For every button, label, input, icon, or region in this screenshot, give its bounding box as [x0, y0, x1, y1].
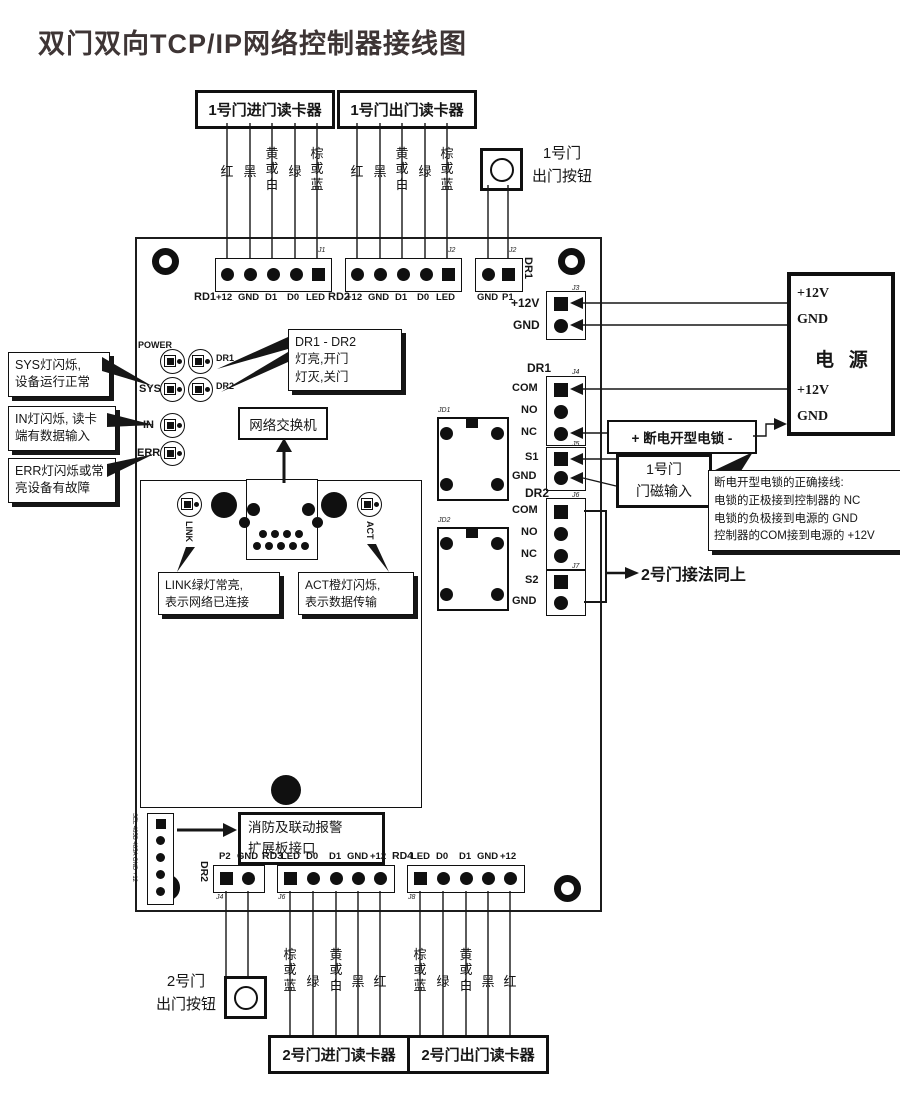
relay-label: JD2 — [438, 517, 450, 524]
link-callout: LINK绿灯常亮, 表示网络已连接 — [158, 572, 280, 615]
pin-circle — [352, 872, 365, 885]
door2-exit-button-label: 2号门 出门按钮 — [150, 971, 222, 1016]
pin-label: +12 — [216, 292, 232, 303]
terminal-block-s2 — [546, 570, 586, 616]
pin-circle — [554, 471, 568, 485]
pin-circle — [482, 268, 495, 281]
wire-label: 红 — [349, 164, 365, 179]
rd3-label: RD3 — [262, 850, 283, 862]
mounting-hole — [152, 248, 179, 275]
wire-label: 棕或蓝 — [282, 947, 298, 993]
pin-label: GND — [512, 470, 536, 482]
pin-label: D0 — [287, 292, 299, 303]
pin-label: GND — [477, 292, 498, 303]
relay-pin — [491, 478, 504, 491]
act-callout: ACT橙灯闪烁, 表示数据传输 — [298, 572, 414, 615]
sys-led-label: SYS — [139, 383, 161, 395]
wire-label: 黄或白 — [328, 947, 344, 993]
buzzer — [271, 775, 301, 805]
pin-circle — [437, 872, 450, 885]
wire-label: 红 — [219, 164, 235, 179]
pin-label: GND — [477, 851, 498, 862]
dr2-vertical-label: DR2 — [198, 861, 210, 893]
pin-square — [554, 575, 568, 589]
terminal-block-rd1 — [215, 258, 332, 292]
relay-pin — [440, 537, 453, 550]
pin-label: LED — [281, 851, 300, 862]
pin-circle — [156, 870, 165, 879]
link-led — [177, 492, 202, 517]
pin-label: +12V — [511, 296, 539, 310]
rj45-small-circle — [302, 503, 315, 516]
err-led — [160, 441, 185, 466]
led-square — [192, 383, 204, 395]
pin-circle — [554, 427, 568, 441]
pin-label: +12 — [500, 851, 516, 862]
pin-label: P2 — [219, 851, 231, 862]
led-dot — [205, 387, 210, 392]
relay-notch — [466, 417, 478, 428]
pin-label: GND — [347, 851, 368, 862]
rj45-big-circle — [321, 492, 347, 518]
relay-pin — [440, 478, 453, 491]
j-label: J4 — [572, 369, 579, 376]
pin-circle — [307, 872, 320, 885]
pin-circle — [420, 268, 433, 281]
pin-label: GND — [238, 292, 259, 303]
dr2-header: DR2 — [525, 486, 549, 500]
pin-square — [414, 872, 427, 885]
rj45-pin-dot — [271, 530, 279, 538]
pin-label: +12 — [370, 851, 386, 862]
pin-circle — [554, 405, 568, 419]
led-dot — [205, 359, 210, 364]
rj45-pin-dot — [295, 530, 303, 538]
pin-square — [156, 819, 166, 829]
wire-label: 绿 — [287, 164, 303, 179]
door1-sensor-box: 1号门 门磁输入 — [616, 454, 712, 508]
door2-exit-button-icon — [224, 976, 267, 1019]
rj45-small-circle — [312, 517, 323, 528]
pin-square — [220, 872, 233, 885]
terminal-block-s1 — [546, 447, 586, 491]
pin-label: COM — [512, 382, 538, 394]
j-label: J8 — [408, 894, 415, 901]
rj45-pin-dot — [265, 542, 273, 550]
door1-in-reader-box: 1号门进门读卡器 — [195, 90, 335, 129]
terminal-block-p2 — [213, 865, 265, 893]
rj45-pin-dot — [283, 530, 291, 538]
act-led-label: ACT — [365, 521, 375, 561]
j-label: J3 — [572, 285, 579, 292]
rj45-pin-dot — [253, 542, 261, 550]
pin-square — [554, 383, 568, 397]
expansion-pin-labels: SEL 485B 485A GND +12 — [131, 813, 137, 903]
door1-exit-button-icon — [480, 148, 523, 191]
expansion-connector — [147, 813, 174, 905]
act-led — [357, 492, 382, 517]
pin-circle — [290, 268, 303, 281]
led-square — [361, 498, 373, 510]
wire-label: 黑 — [480, 974, 496, 989]
pin-label: D1 — [329, 851, 341, 862]
terminal-block-rd2 — [345, 258, 462, 292]
pin-square — [442, 268, 455, 281]
led-dot — [177, 423, 182, 428]
door1-out-reader-box: 1号门出门读卡器 — [337, 90, 477, 129]
pin-label: GND — [368, 292, 389, 303]
led-square — [164, 383, 176, 395]
pin-label: NC — [521, 426, 537, 438]
terminal-block-p1 — [475, 258, 523, 292]
psu-pin-label: +12V — [797, 383, 829, 399]
pin-label: LED — [411, 851, 430, 862]
pin-square — [312, 268, 325, 281]
door1-exit-button-label: 1号门 出门按钮 — [520, 143, 604, 188]
lock-wiring-note: 断电开型电锁的正确接线: 电锁的正极接到控制器的 NC 电锁的负极接到电源的 G… — [708, 470, 900, 551]
mounting-hole — [558, 248, 585, 275]
relay-jd2 — [437, 527, 509, 611]
pin-label: COM — [512, 504, 538, 516]
rj45-pin-dot — [301, 542, 309, 550]
err-callout: ERR灯闪烁或常 亮设备有故障 — [8, 458, 116, 503]
pin-circle — [156, 853, 165, 862]
dr1-header: DR1 — [527, 361, 551, 375]
pin-circle — [374, 872, 387, 885]
electric-lock-box: + 断电开型电锁 - — [607, 420, 757, 454]
wire-label: 绿 — [435, 974, 451, 989]
pin-label: GND — [513, 318, 540, 332]
relay-jd1 — [437, 417, 509, 501]
relay-pin — [491, 427, 504, 440]
pin-circle — [397, 268, 410, 281]
relay-pin — [491, 537, 504, 550]
led-dot — [194, 502, 199, 507]
psu-pin-label: GND — [797, 312, 828, 328]
pin-circle — [156, 887, 165, 896]
wire-label: 棕或蓝 — [412, 947, 428, 993]
wire-label: 黄或白 — [264, 146, 280, 192]
pin-circle — [221, 268, 234, 281]
j-label: J4 — [216, 894, 223, 901]
j-label: J6 — [278, 894, 285, 901]
pin-circle — [554, 549, 568, 563]
sys-callout: SYS灯闪烁, 设备运行正常 — [8, 352, 110, 397]
led-square — [164, 447, 176, 459]
link-led-label: LINK — [184, 521, 194, 561]
pin-square — [554, 452, 568, 466]
door2-same-note: 2号门接法同上 — [641, 561, 746, 585]
button-circle — [490, 158, 514, 182]
rj45-small-circle — [247, 503, 260, 516]
sys-led — [160, 377, 185, 402]
dr2-led-label: DR2 — [216, 381, 234, 391]
led-dot — [177, 359, 182, 364]
relay-pin — [440, 427, 453, 440]
pin-square — [502, 268, 515, 281]
relay-pin — [440, 588, 453, 601]
pin-label: LED — [436, 292, 455, 303]
pin-circle — [554, 596, 568, 610]
wiring-diagram: 双门双向TCP/IP网络控制器接线图 1号门进门读卡器 1号门出门读卡器 红 黑… — [0, 0, 900, 1102]
pin-circle — [156, 836, 165, 845]
pin-square — [554, 297, 568, 311]
pin-label: D1 — [459, 851, 471, 862]
dr2-led — [188, 377, 213, 402]
pin-circle — [554, 319, 568, 333]
rj45-pin-dot — [277, 542, 285, 550]
j-label: J6 — [572, 492, 579, 499]
relay-notch — [466, 527, 478, 538]
door2-out-reader-box: 2号门出门读卡器 — [407, 1035, 549, 1074]
pin-label: GND — [237, 851, 258, 862]
psu-pin-label: +12V — [797, 286, 829, 302]
mounting-hole — [554, 875, 581, 902]
in-led — [160, 413, 185, 438]
led-dot — [177, 451, 182, 456]
led-square — [192, 355, 204, 367]
pin-circle — [374, 268, 387, 281]
pin-label: D1 — [265, 292, 277, 303]
wire-label: 黑 — [242, 164, 258, 179]
wire-label: 黑 — [350, 974, 366, 989]
pin-circle — [267, 268, 280, 281]
j-label: J1 — [318, 247, 325, 254]
pin-label: D0 — [306, 851, 318, 862]
wire-label: 绿 — [305, 974, 321, 989]
pin-circle — [504, 872, 517, 885]
rd1-label: RD1 — [194, 291, 216, 303]
pin-circle — [554, 527, 568, 541]
wire-label: 棕或蓝 — [309, 146, 325, 192]
pin-label: NC — [521, 548, 537, 560]
led-square — [164, 355, 176, 367]
rj45-pin-dot — [259, 530, 267, 538]
power-led-label: POWER — [138, 340, 172, 350]
rj45-big-circle — [211, 492, 237, 518]
led-square — [164, 419, 176, 431]
dr-callout: DR1 - DR2 灯亮,开门 灯灭,关门 — [288, 329, 402, 391]
pin-label: S1 — [525, 451, 538, 463]
pin-square — [554, 505, 568, 519]
pin-circle — [460, 872, 473, 885]
power-supply-title: 电 源 — [815, 345, 873, 372]
relay-label: JD1 — [438, 407, 450, 414]
pin-label: NO — [521, 404, 538, 416]
dr1-led-label: DR1 — [216, 353, 234, 363]
terminal-block-dr2 — [546, 498, 586, 570]
j-label: J2 — [448, 247, 455, 254]
wire-label: 棕或蓝 — [439, 146, 455, 192]
pin-circle — [244, 268, 257, 281]
pin-label: NO — [521, 526, 538, 538]
psu-pin-label: GND — [797, 409, 828, 425]
rj45-pin-dot — [289, 542, 297, 550]
in-led-label: IN — [143, 419, 154, 431]
rj45-small-circle — [239, 517, 250, 528]
err-led-label: ERR — [137, 447, 160, 459]
led-dot — [374, 502, 379, 507]
pin-label: +12 — [346, 292, 362, 303]
terminal-block-rd4 — [407, 865, 525, 893]
pin-circle — [330, 872, 343, 885]
j-label: J7 — [572, 563, 579, 570]
pin-circle — [242, 872, 255, 885]
terminal-block-j3 — [546, 291, 586, 340]
pin-label: D0 — [417, 292, 429, 303]
pin-square — [284, 872, 297, 885]
pin-label: GND — [512, 595, 536, 607]
wire-label: 红 — [372, 974, 388, 989]
led-square — [181, 498, 193, 510]
pin-circle — [351, 268, 364, 281]
wire-label: 红 — [502, 974, 518, 989]
pin-label: D1 — [395, 292, 407, 303]
door2-in-reader-box: 2号门进门读卡器 — [268, 1035, 410, 1074]
terminal-block-dr1 — [546, 376, 586, 446]
pin-label: S2 — [525, 574, 538, 586]
page-title: 双门双向TCP/IP网络控制器接线图 — [38, 22, 467, 61]
wire-label: 黑 — [372, 164, 388, 179]
relay-pin — [491, 588, 504, 601]
dr1-led — [188, 349, 213, 374]
wire-label: 绿 — [417, 164, 433, 179]
network-switch-box: 网络交换机 — [238, 407, 328, 440]
in-callout: IN灯闪烁, 读卡 端有数据输入 — [8, 406, 116, 451]
pin-label: D0 — [436, 851, 448, 862]
rd4-label: RD4 — [392, 850, 413, 862]
pin-circle — [482, 872, 495, 885]
button-circle — [234, 986, 258, 1010]
led-dot — [177, 387, 182, 392]
dr1-vertical-label: DR1 — [522, 257, 534, 293]
wire-label: 黄或白 — [458, 947, 474, 993]
power-led — [160, 349, 185, 374]
terminal-block-rd3 — [277, 865, 395, 893]
pin-label: LED — [306, 292, 325, 303]
j-label: J5 — [572, 441, 579, 448]
wire-label: 黄或白 — [394, 146, 410, 192]
j-label: J2 — [509, 247, 516, 254]
